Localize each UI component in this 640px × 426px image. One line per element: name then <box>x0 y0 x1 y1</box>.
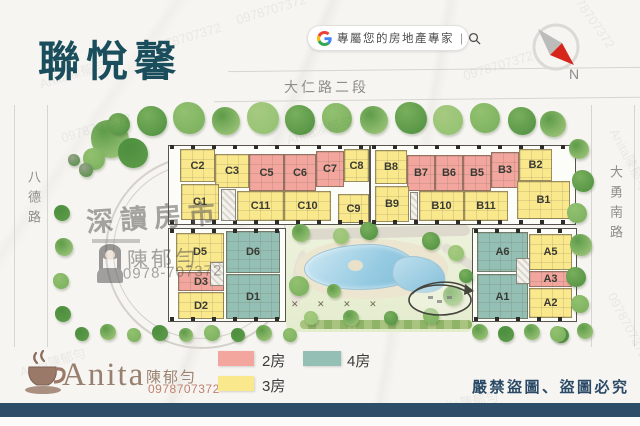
unit-B5: B5 <box>463 155 491 191</box>
tree-icon <box>54 205 70 221</box>
tree-icon <box>212 107 240 135</box>
tree-icon <box>292 224 310 242</box>
bottom-margin <box>0 417 640 426</box>
unit-C5: C5 <box>249 154 284 191</box>
road-edge-right-1 <box>591 105 592 347</box>
unit-B8: B8 <box>375 150 407 184</box>
tree-icon <box>343 310 359 326</box>
tree-icon <box>550 326 566 342</box>
legend-swatch-2br <box>218 351 254 366</box>
pool-island <box>348 260 363 271</box>
tree-icon <box>508 107 536 135</box>
tree-icon <box>79 163 93 177</box>
divider: | <box>460 31 463 45</box>
tree-icon <box>152 325 168 341</box>
unit-B6: B6 <box>435 155 463 191</box>
magnifier-icon <box>468 32 481 45</box>
unit-A5: A5 <box>529 234 572 270</box>
unit-C3: C3 <box>215 154 249 188</box>
columns <box>474 317 575 321</box>
columns <box>170 229 284 233</box>
tree-icon <box>384 311 398 325</box>
road-label-top: 大仁路二段 <box>284 77 369 97</box>
tree-icon <box>322 103 352 133</box>
brand-name: Anita <box>62 357 145 394</box>
diagonal-watermark-text: 0978707372 <box>461 48 535 83</box>
tree-icon <box>360 106 388 134</box>
road-edge-right-2 <box>634 105 635 347</box>
tree-icon <box>231 328 245 342</box>
tree-icon <box>572 170 594 192</box>
google-g-icon <box>317 31 332 46</box>
plan-annotation-oval <box>406 277 476 324</box>
tree-icon <box>100 324 116 340</box>
tree-icon <box>577 323 593 339</box>
tree-icon <box>55 306 71 322</box>
tree-icon <box>179 328 193 342</box>
legend-label-2br: 2房 <box>262 350 285 371</box>
road-label-right: 大勇南路 <box>606 165 625 245</box>
tree-icon <box>118 138 148 168</box>
tree-icon <box>137 106 167 136</box>
road-edge-left-1 <box>14 105 15 347</box>
diagonal-watermark-text: 0978707372 <box>234 0 308 27</box>
tree-icon <box>433 105 463 135</box>
columns <box>170 220 368 224</box>
road-edge-top-2 <box>214 97 640 102</box>
road-label-left: 八德路 <box>24 170 43 230</box>
tree-icon <box>448 245 464 261</box>
tree-icon <box>395 102 427 134</box>
unit-B1: B1 <box>517 181 570 219</box>
stair-core <box>410 192 418 220</box>
unit-D2: D2 <box>178 292 224 319</box>
agent-avatar <box>95 244 125 284</box>
compass-icon: N <box>527 20 591 89</box>
tree-icon <box>173 102 205 134</box>
columns <box>170 317 284 321</box>
tree-icon <box>360 222 378 240</box>
tree-icon <box>55 238 73 256</box>
legend-swatch-4br <box>303 351 341 366</box>
tree-icon <box>540 111 566 137</box>
tree-icon <box>524 324 540 340</box>
unit-C1: C1 <box>181 184 219 220</box>
lounger-icons: ✕ ✕ ✕ ✕ <box>291 299 385 310</box>
search-slogan: 專屬您的房地產專家 <box>337 30 454 46</box>
footer-accent-bar <box>0 403 640 417</box>
road-edge-left-2 <box>47 105 48 347</box>
tree-icon <box>53 273 69 289</box>
unit-B11: B11 <box>464 191 508 221</box>
columns <box>474 229 575 233</box>
copyright-warning: 嚴禁盜圖、盜圖必究 <box>472 376 630 397</box>
stair-core <box>516 258 530 284</box>
compass-n-label: N <box>569 66 579 82</box>
tree-icon <box>289 276 309 296</box>
tree-icon <box>333 228 349 244</box>
unit-C9: C9 <box>338 194 369 223</box>
unit-C2: C2 <box>180 149 215 182</box>
tree-icon <box>283 328 297 342</box>
flyer-canvas: 聯悅馨 專屬您的房地產專家 | N N 大仁路二段 八德路 大勇 <box>0 0 640 426</box>
tree-icon <box>75 327 89 341</box>
unit-D6: D6 <box>226 231 280 273</box>
tree-icon <box>569 139 589 159</box>
unit-C8: C8 <box>344 149 369 182</box>
tree-icon <box>304 311 318 325</box>
footer-agent-phone: 0978707372 <box>148 382 220 396</box>
columns <box>170 145 368 149</box>
tree-icon <box>570 234 592 256</box>
unit-C10: C10 <box>284 191 331 221</box>
tree-icon <box>127 328 141 342</box>
unit-B10: B10 <box>419 191 464 221</box>
stair-core <box>221 189 236 221</box>
tree-icon <box>472 324 488 340</box>
unit-B2: B2 <box>519 149 552 181</box>
watermark-caption-bar <box>92 239 140 243</box>
unit-D1: D1 <box>226 274 280 319</box>
unit-B3: B3 <box>491 152 519 188</box>
legend-swatch-3br <box>218 376 254 391</box>
tree-icon <box>327 284 341 298</box>
tree-icon <box>204 325 220 341</box>
tree-icon <box>571 295 589 313</box>
tree-icon <box>498 326 514 342</box>
legend-label-4br: 4房 <box>347 350 370 371</box>
unit-A2: A2 <box>529 288 572 318</box>
unit-C7: C7 <box>316 151 344 187</box>
unit-B9: B9 <box>375 186 409 222</box>
tree-icon <box>470 103 500 133</box>
tree-icon <box>285 105 315 135</box>
unit-C6: C6 <box>284 154 316 191</box>
unit-B7: B7 <box>407 155 435 191</box>
page-title: 聯悅馨 <box>38 28 182 89</box>
stair-core <box>210 262 224 286</box>
tree-icon <box>108 113 130 135</box>
search-bar: 專屬您的房地產專家 | <box>307 25 469 51</box>
legend-label-3br: 3房 <box>262 375 285 396</box>
columns <box>372 145 574 149</box>
tree-icon <box>566 267 586 287</box>
tree-icon <box>247 102 279 134</box>
columns <box>372 220 574 224</box>
unit-C11: C11 <box>237 191 284 221</box>
tree-icon <box>68 154 80 166</box>
tree-icon <box>256 325 272 341</box>
tree-icon <box>422 232 440 250</box>
